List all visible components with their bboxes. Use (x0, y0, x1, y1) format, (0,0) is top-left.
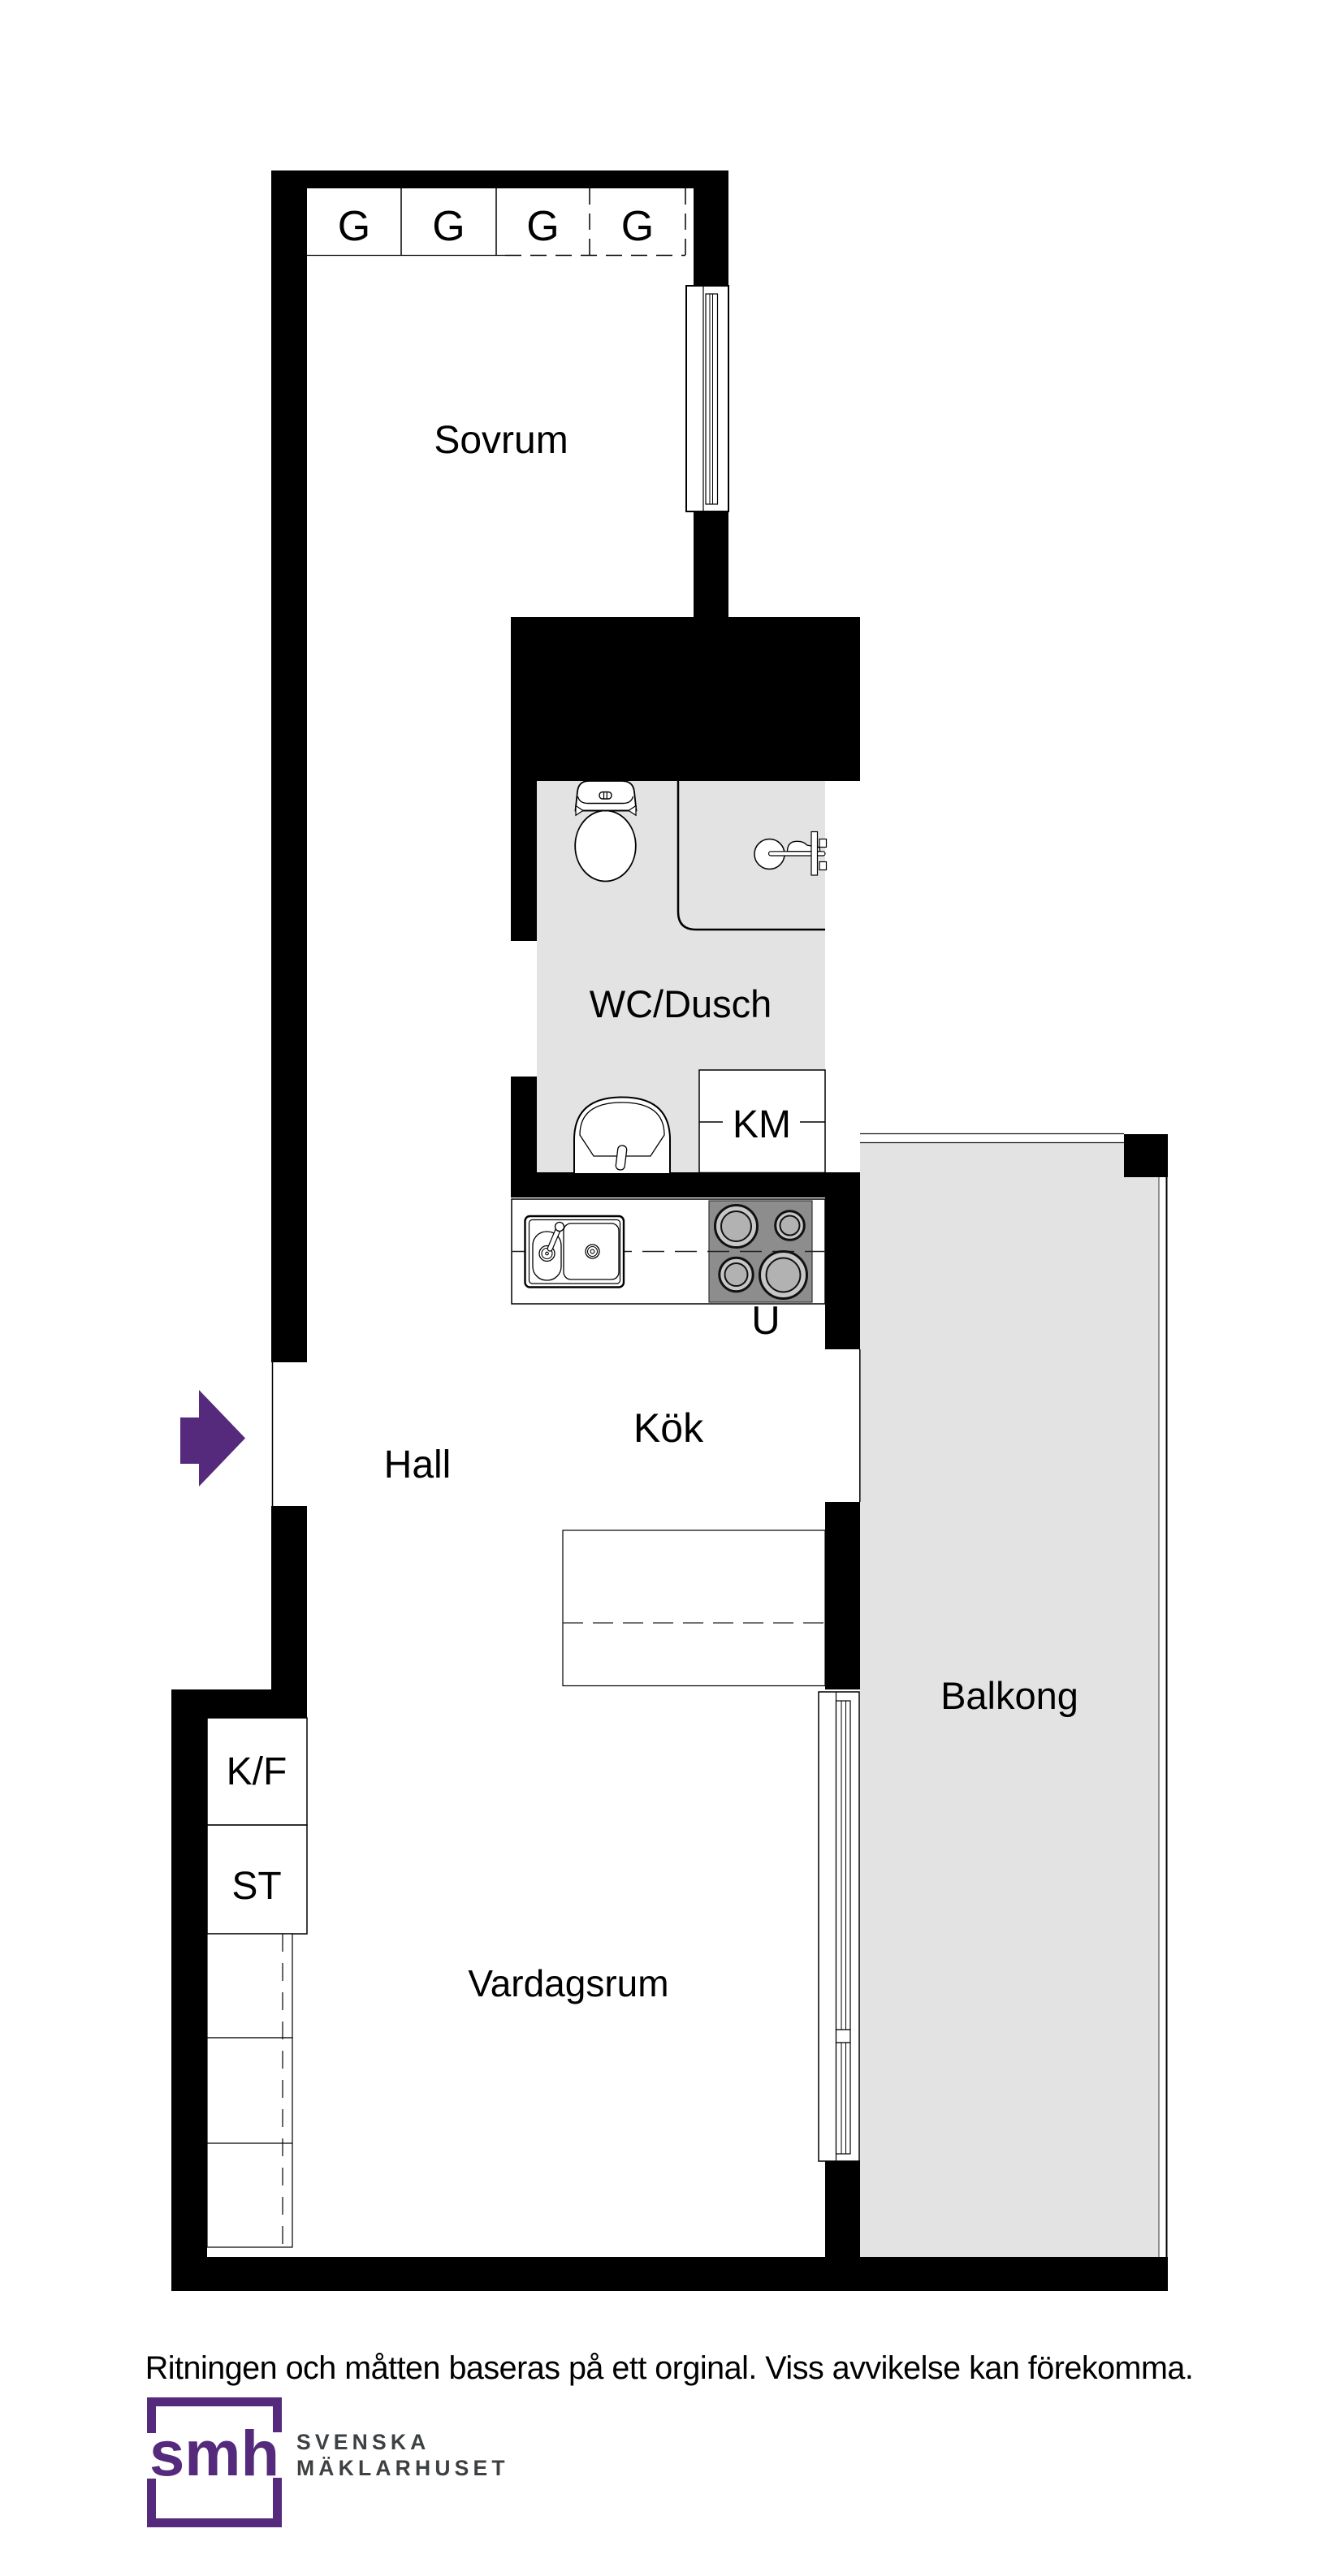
svg-text:Kök: Kök (633, 1405, 704, 1451)
svg-text:WC/Dusch: WC/Dusch (590, 982, 772, 1025)
svg-text:Sovrum: Sovrum (434, 419, 568, 462)
svg-text:U: U (751, 1299, 780, 1343)
svg-text:Ritningen och måtten baseras p: Ritningen och måtten baseras på ett orgi… (145, 2350, 1194, 2386)
svg-text:ST: ST (231, 1865, 281, 1908)
svg-text:MÄKLARHUSET: MÄKLARHUSET (296, 2456, 509, 2480)
svg-text:G: G (338, 203, 370, 250)
svg-text:Balkong: Balkong (940, 1674, 1078, 1717)
svg-text:G: G (621, 203, 654, 250)
svg-text:K/F: K/F (227, 1750, 287, 1793)
svg-text:G: G (526, 203, 559, 250)
svg-text:smh: smh (149, 2417, 279, 2489)
svg-text:Vardagsrum: Vardagsrum (468, 1962, 668, 2004)
svg-text:SVENSKA: SVENSKA (296, 2430, 430, 2454)
svg-text:Hall: Hall (384, 1443, 452, 1486)
svg-text:KM: KM (733, 1103, 791, 1146)
svg-text:G: G (432, 203, 465, 250)
